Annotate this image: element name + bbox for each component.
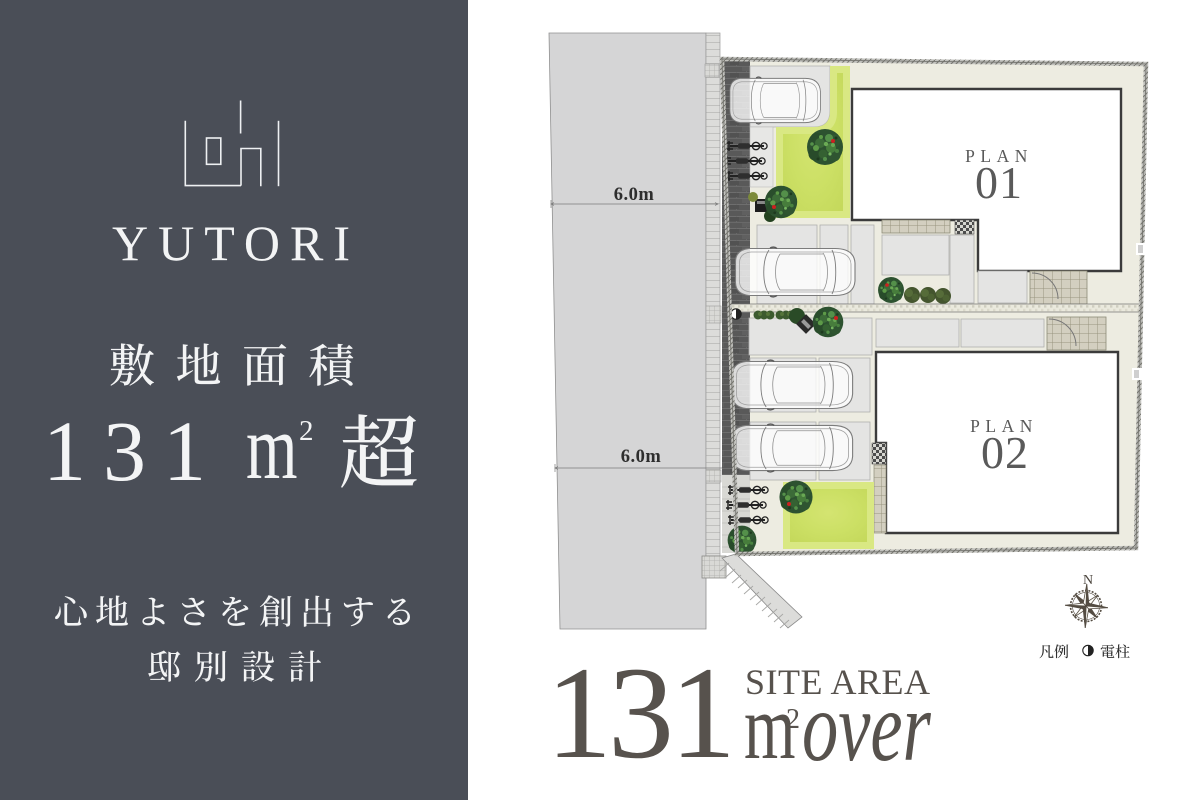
svg-text:01: 01	[975, 157, 1023, 208]
svg-text:YUTORI: YUTORI	[112, 215, 360, 271]
svg-text:m: m	[246, 398, 298, 499]
svg-text:N: N	[1083, 573, 1093, 588]
svg-text:6.0m: 6.0m	[621, 447, 662, 467]
svg-text:131: 131	[43, 403, 223, 499]
svg-text:2: 2	[786, 704, 800, 735]
svg-text:over: over	[802, 671, 932, 782]
svg-text:02: 02	[981, 427, 1029, 478]
svg-text:2: 2	[299, 415, 314, 447]
svg-text:131: 131	[546, 639, 732, 786]
svg-text:6.0m: 6.0m	[614, 185, 655, 205]
